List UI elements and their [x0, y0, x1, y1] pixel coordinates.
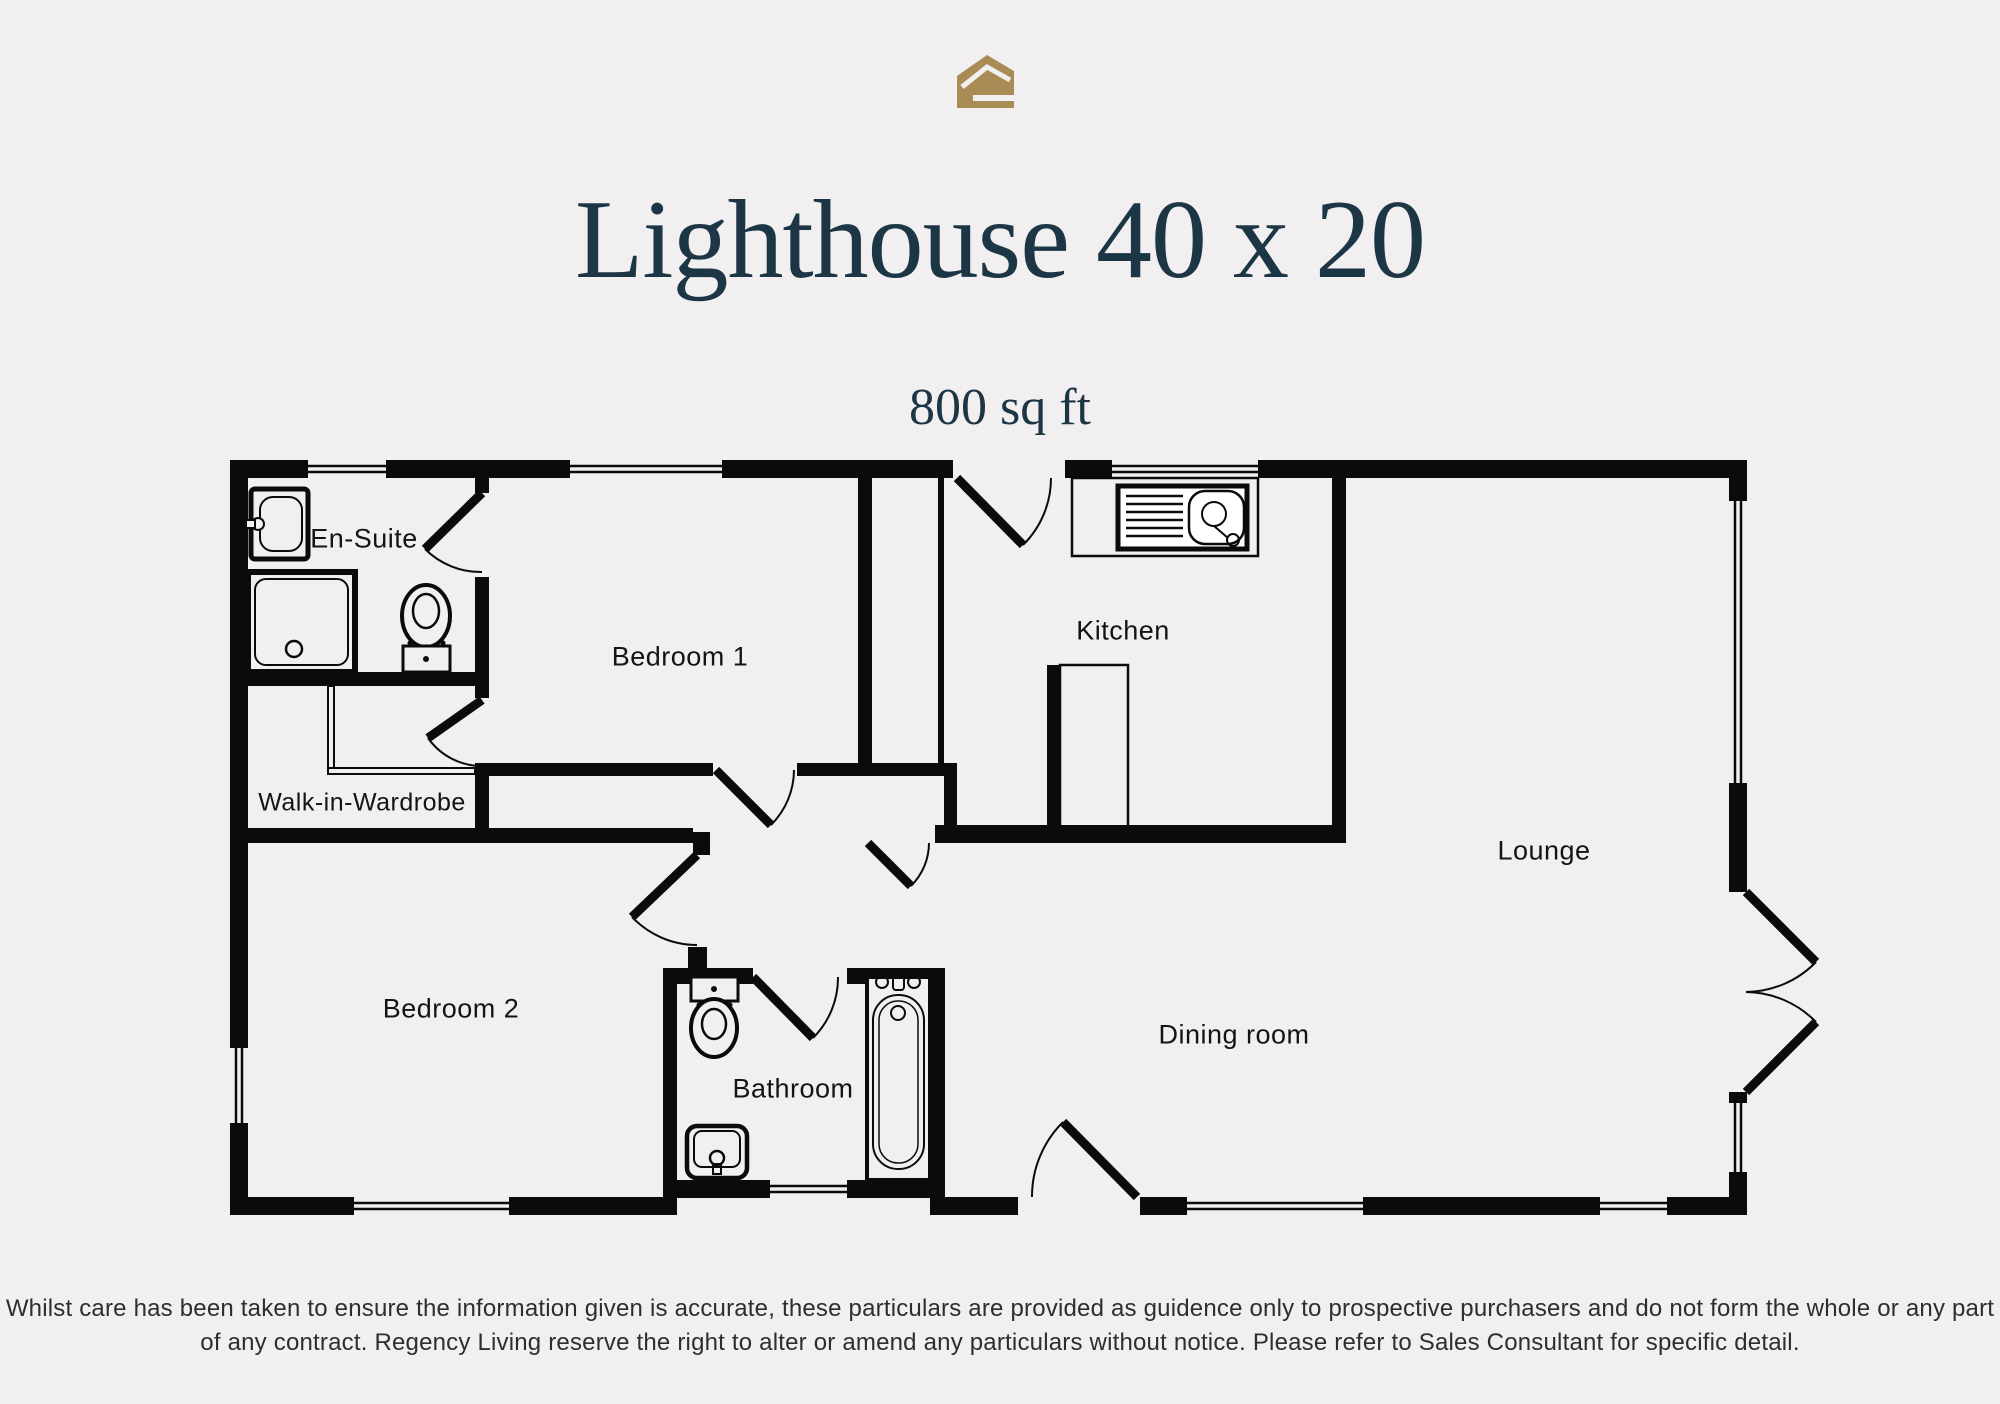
- window-ensuite-top: [308, 460, 386, 478]
- kitchen-sink-icon: [1118, 486, 1247, 549]
- room-label-en-suite: En-Suite: [310, 524, 418, 555]
- bathroom-basin-icon: [687, 1126, 747, 1178]
- bathroom-door: [753, 977, 838, 1038]
- hall-dining-door: [868, 843, 929, 886]
- window-lounge-right: [1729, 501, 1747, 783]
- room-label-bedroom-2: Bedroom 2: [383, 994, 520, 1025]
- disclaimer: Whilst care has been taken to ensure the…: [0, 1292, 2000, 1360]
- room-label-lounge: Lounge: [1497, 836, 1590, 867]
- room-label-dining-room: Dining room: [1158, 1020, 1309, 1051]
- french-doors-icon: [1746, 892, 1816, 1092]
- room-label-bathroom: Bathroom: [732, 1074, 853, 1105]
- disclaimer-line-2: of any contract. Regency Living reserve …: [0, 1326, 2000, 1360]
- wardrobe-thin-walls: [328, 686, 475, 774]
- toilet-icon: [402, 585, 450, 672]
- window-bathroom-bottom: [770, 1180, 847, 1198]
- window-bedroom2-left: [230, 1048, 248, 1123]
- floorplan-drawing: [0, 0, 2000, 1404]
- bathroom-toilet-icon: [691, 977, 738, 1057]
- floorplan-page: Lighthouse 40 x 20 800 sq ft: [0, 0, 2000, 1404]
- window-dining-bottom: [1187, 1197, 1363, 1215]
- ensuite-door: [425, 493, 482, 572]
- disclaimer-line-1: Whilst care has been taken to ensure the…: [0, 1292, 2000, 1326]
- dining-patio-door: [1032, 1122, 1137, 1197]
- room-label-walk-in-wardrobe: Walk-in-Wardrobe: [258, 789, 466, 818]
- wardrobe-door: [428, 700, 482, 766]
- shower-icon: [248, 572, 355, 672]
- window-lounge-bottom: [1600, 1197, 1667, 1215]
- window-bedroom2-bottom: [354, 1197, 509, 1215]
- room-label-kitchen: Kitchen: [1076, 616, 1170, 647]
- window-kitchen-top: [1112, 460, 1258, 478]
- room-label-bedroom-1: Bedroom 1: [612, 642, 749, 673]
- window-bedroom1-top: [570, 460, 722, 478]
- bath-icon: [867, 975, 930, 1180]
- front-door: [957, 478, 1051, 545]
- bedroom2-door: [632, 855, 697, 945]
- bedroom1-door: [716, 770, 794, 825]
- window-lounge-right-lower: [1729, 1103, 1747, 1172]
- basin-icon: [246, 489, 308, 559]
